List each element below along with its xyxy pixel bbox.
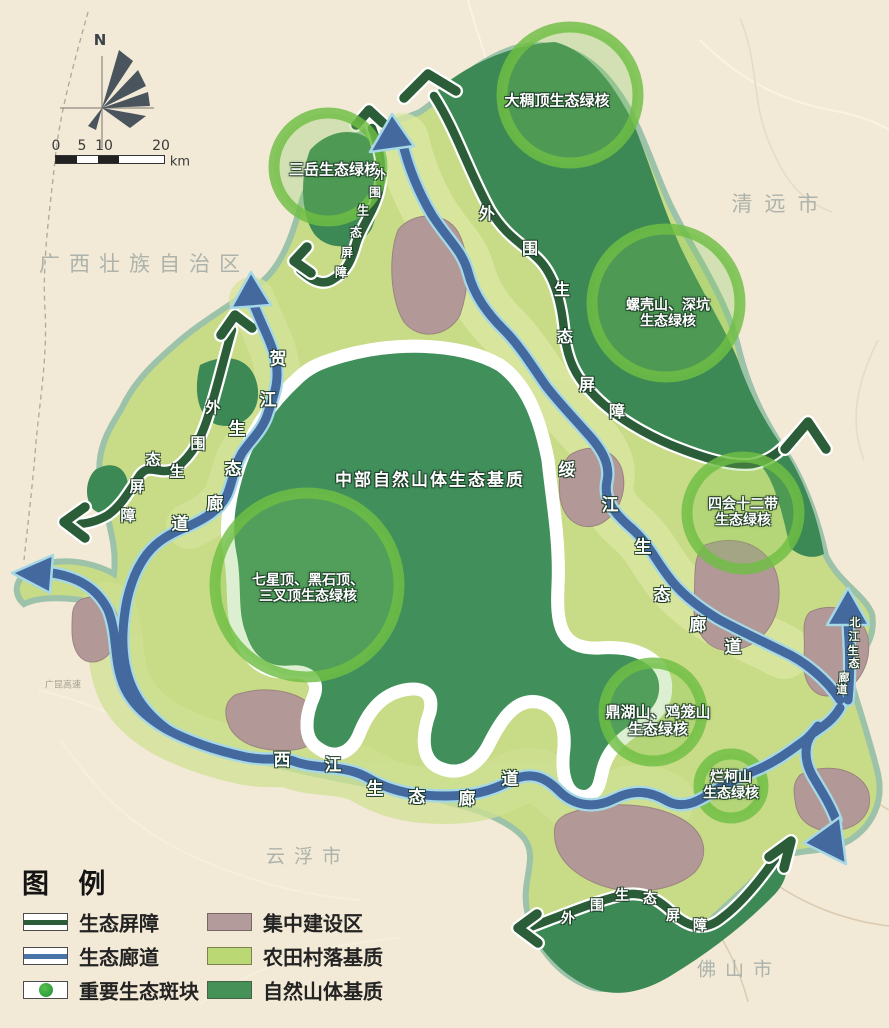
core-dinghu: [604, 663, 702, 761]
legend-item-corridor: 生态廊道: [23, 946, 203, 966]
core-sihui: [687, 457, 799, 569]
scale-tick-10: 10: [95, 138, 113, 154]
core-qixingding: [215, 493, 399, 677]
north-label: N: [94, 31, 107, 49]
legend-title: 图 例: [22, 862, 115, 901]
ecological-planning-map: N 0 5 10 20 km 广西壮族自治区 清远市 云浮市 佛山市 广昆高速 …: [0, 0, 889, 1028]
scale-tick-20: 20: [152, 138, 170, 154]
scale-unit: km: [170, 155, 190, 170]
legend-item-mountain: 自然山体基质: [207, 980, 427, 1000]
green-patch-swatch: [23, 981, 68, 999]
legend-item-builtup: 集中建设区: [207, 912, 427, 932]
scale-tick-0: 0: [52, 138, 61, 154]
legend-item-barrier: 生态屏障: [23, 912, 203, 932]
core-sanyue: [274, 113, 382, 221]
core-dachouding: [502, 27, 638, 163]
mountain-swatch: [207, 981, 252, 999]
core-luoke: [592, 229, 740, 377]
scale-bar-segments: [55, 155, 165, 164]
legend-item-patch: 重要生态斑块: [23, 980, 223, 1000]
farmland-swatch: [207, 947, 252, 965]
builtup-swatch: [207, 913, 252, 931]
scale-tick-5: 5: [78, 138, 87, 154]
corridor-line-swatch: [23, 947, 68, 965]
barrier-line-swatch: [23, 913, 68, 931]
scale-bar: 0 5 10 20 km: [48, 136, 218, 176]
legend-item-farmland: 农田村落基质: [207, 946, 427, 966]
